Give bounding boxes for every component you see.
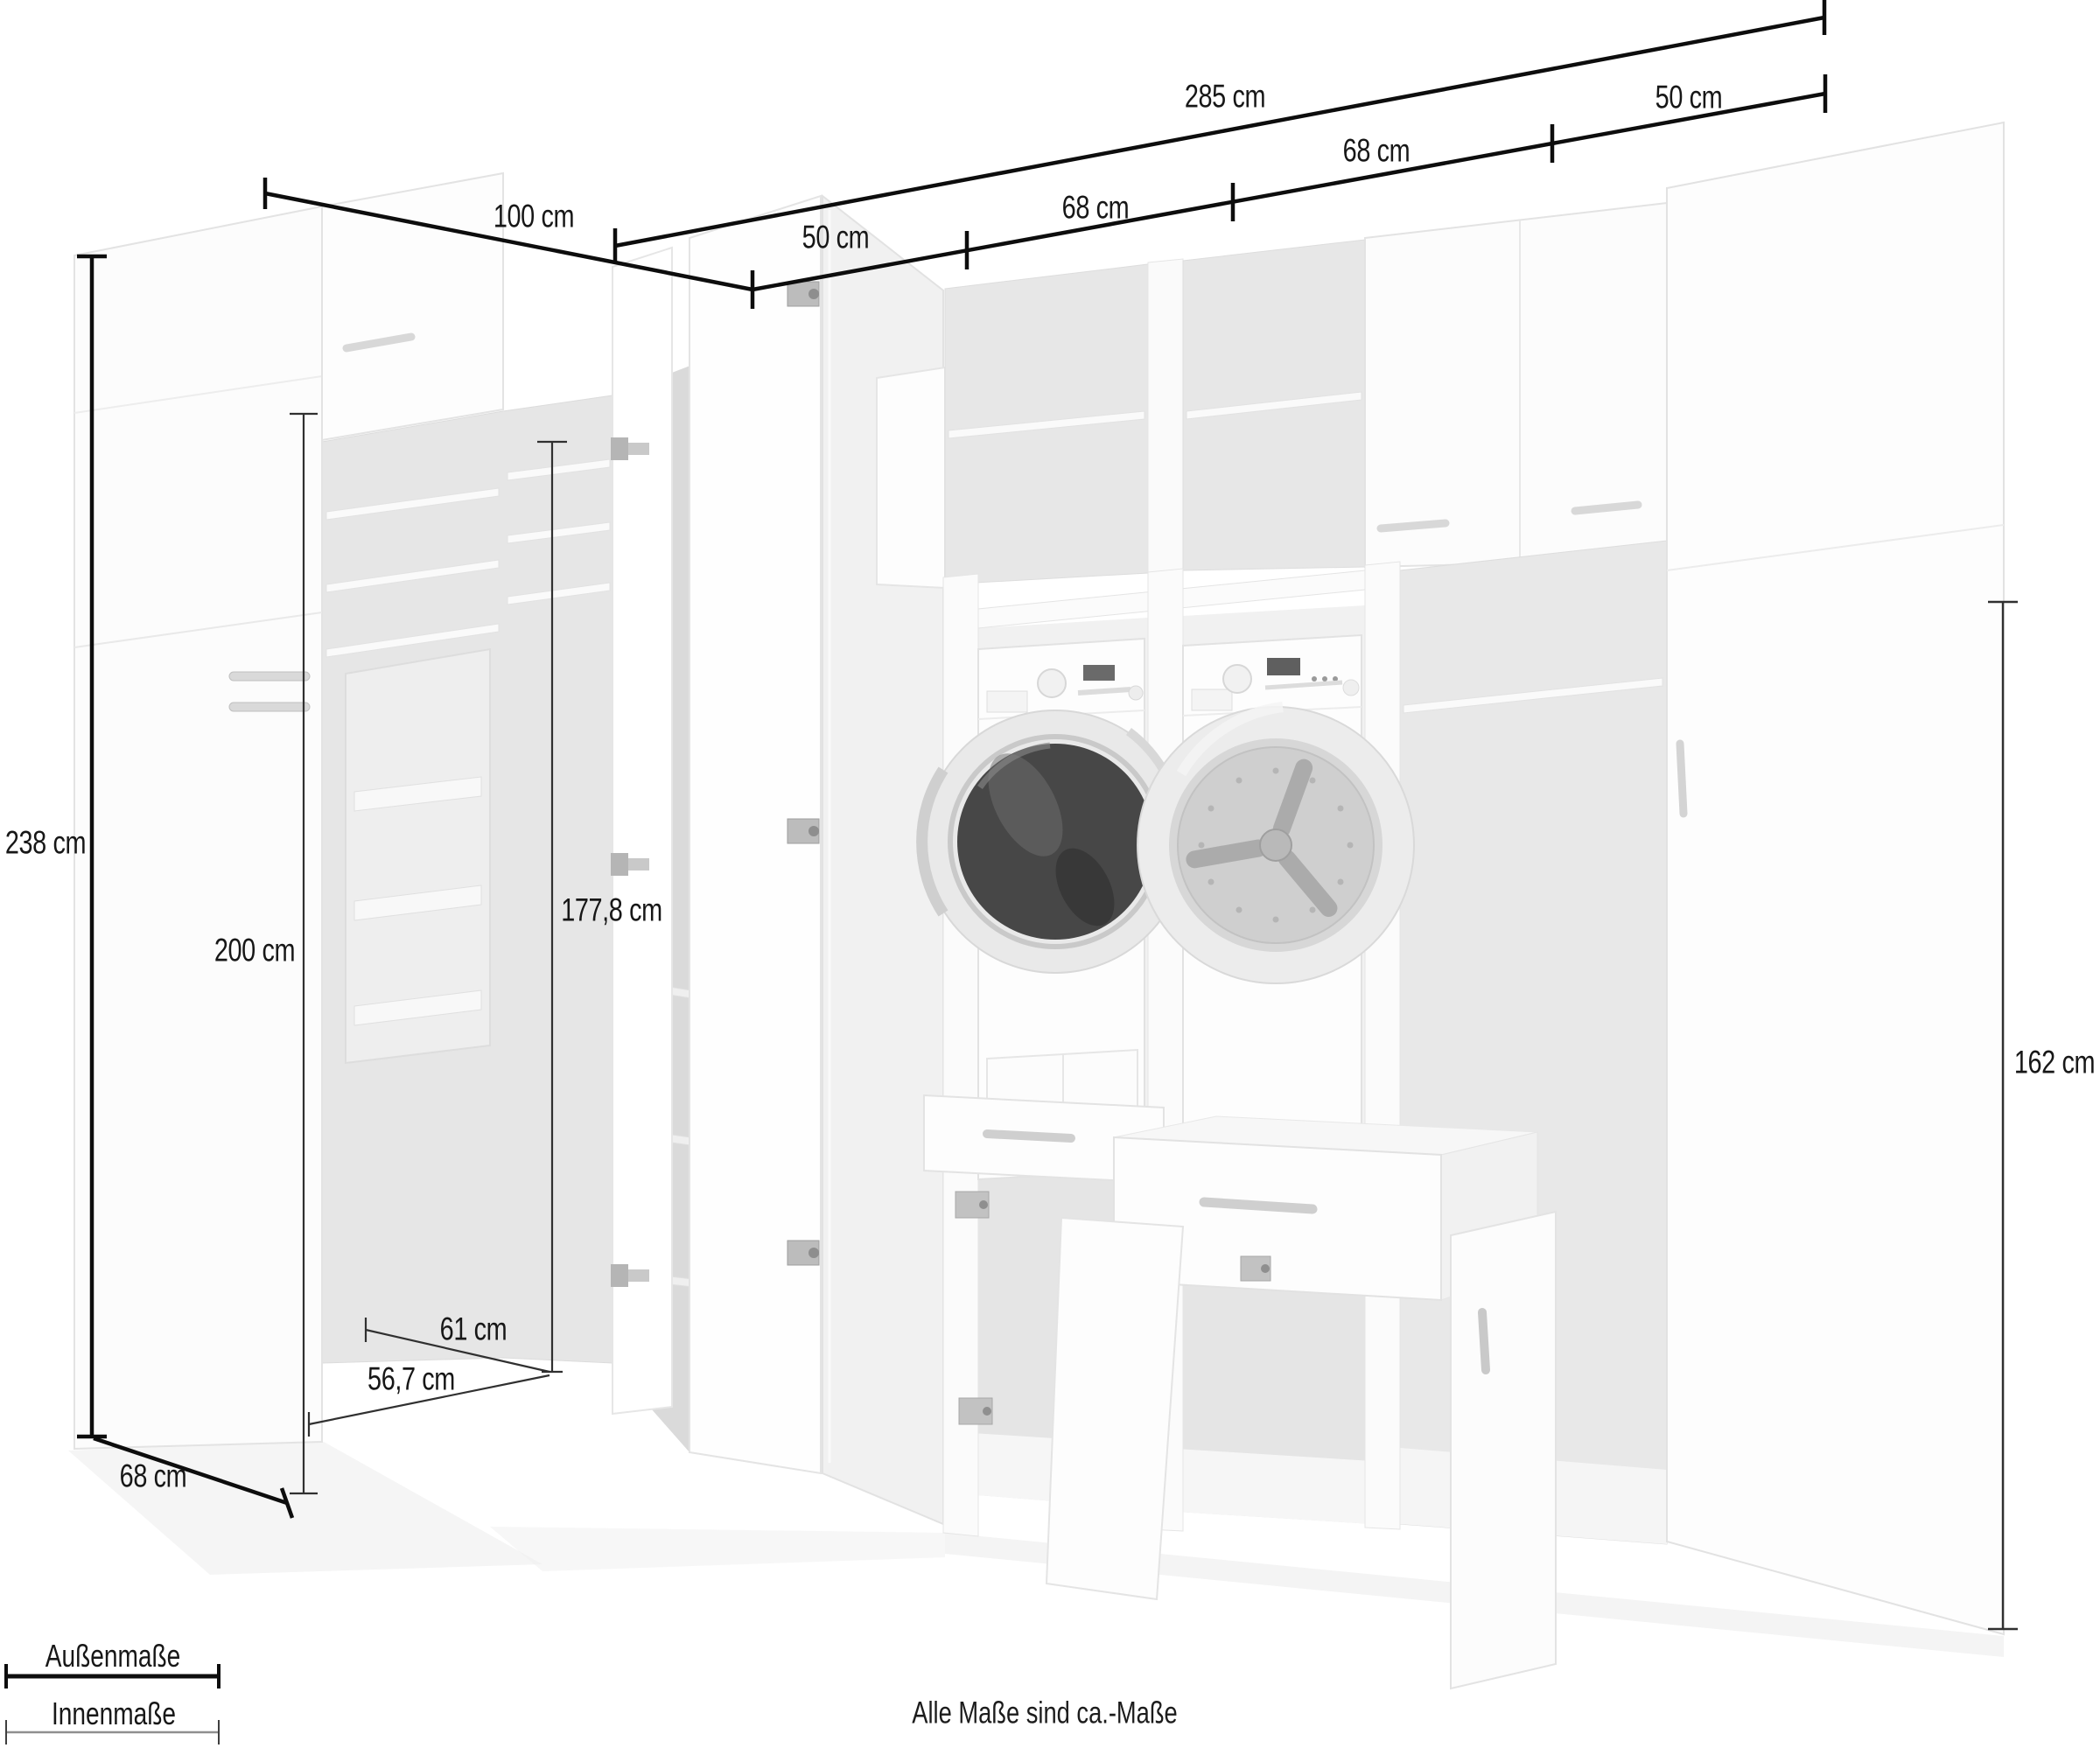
porthole-door xyxy=(1137,707,1414,983)
dim-label-segment-50-left: 50 cm xyxy=(802,221,870,254)
detergent-flap xyxy=(1192,689,1232,710)
display xyxy=(1083,665,1115,681)
display xyxy=(1267,658,1300,675)
detergent-flap xyxy=(987,691,1027,712)
dim-label-right-inner-height: 162 cm xyxy=(2014,1046,2095,1079)
base-open-door-right xyxy=(1451,1212,1556,1689)
corner-open-door-left xyxy=(689,196,821,1473)
drum-hub xyxy=(1260,829,1291,861)
left-tall-cabinet xyxy=(74,206,322,1449)
pullout-larder xyxy=(346,649,490,1063)
right-tall-cabinet xyxy=(1667,122,2004,1634)
base-open-door-left xyxy=(1046,1218,1183,1599)
drawer-handle xyxy=(987,1134,1071,1138)
door-handle xyxy=(229,672,310,681)
dim-label-segment-68-right: 68 cm xyxy=(1343,135,1410,167)
dim-label-right-return-width: 50 cm xyxy=(1655,81,1723,114)
door-handle xyxy=(229,703,310,711)
product-dimension-diagram: 285 cm 50 cm 68 cm 68 cm 50 cm 100 cm 23… xyxy=(0,0,2100,1748)
door-handle xyxy=(1381,523,1445,528)
program-knob xyxy=(1223,665,1251,693)
upper-door-cabinets xyxy=(1365,203,1667,567)
furniture-illustration xyxy=(0,0,2100,1748)
program-knob xyxy=(1038,669,1066,697)
dim-label-inner-depth-bottom: 56,7 cm xyxy=(367,1363,455,1395)
dim-label-outer-depth: 68 cm xyxy=(120,1460,187,1493)
dim-label-left-wing-width: 100 cm xyxy=(493,200,574,233)
dim-label-inner-height-corner: 177,8 cm xyxy=(561,894,662,926)
legend-inner-label: Innenmaße xyxy=(52,1698,176,1730)
open-wardrobe-door xyxy=(611,248,672,1414)
upper-door-left xyxy=(322,173,503,440)
upper-open-door-small xyxy=(877,367,945,588)
door-handle xyxy=(1482,1312,1486,1370)
door-handle xyxy=(1680,744,1683,814)
footer-note: Alle Maße sind ca.-Maße xyxy=(912,1698,1177,1729)
legend-outer-label: Außenmaße xyxy=(45,1640,181,1672)
dim-label-total-width: 285 cm xyxy=(1185,80,1265,113)
dim-label-outer-height: 238 cm xyxy=(5,827,86,859)
dim-label-segment-68-left: 68 cm xyxy=(1062,192,1130,224)
dim-label-inner-depth-top: 61 cm xyxy=(440,1313,507,1346)
dim-label-inner-height-left: 200 cm xyxy=(214,934,295,967)
